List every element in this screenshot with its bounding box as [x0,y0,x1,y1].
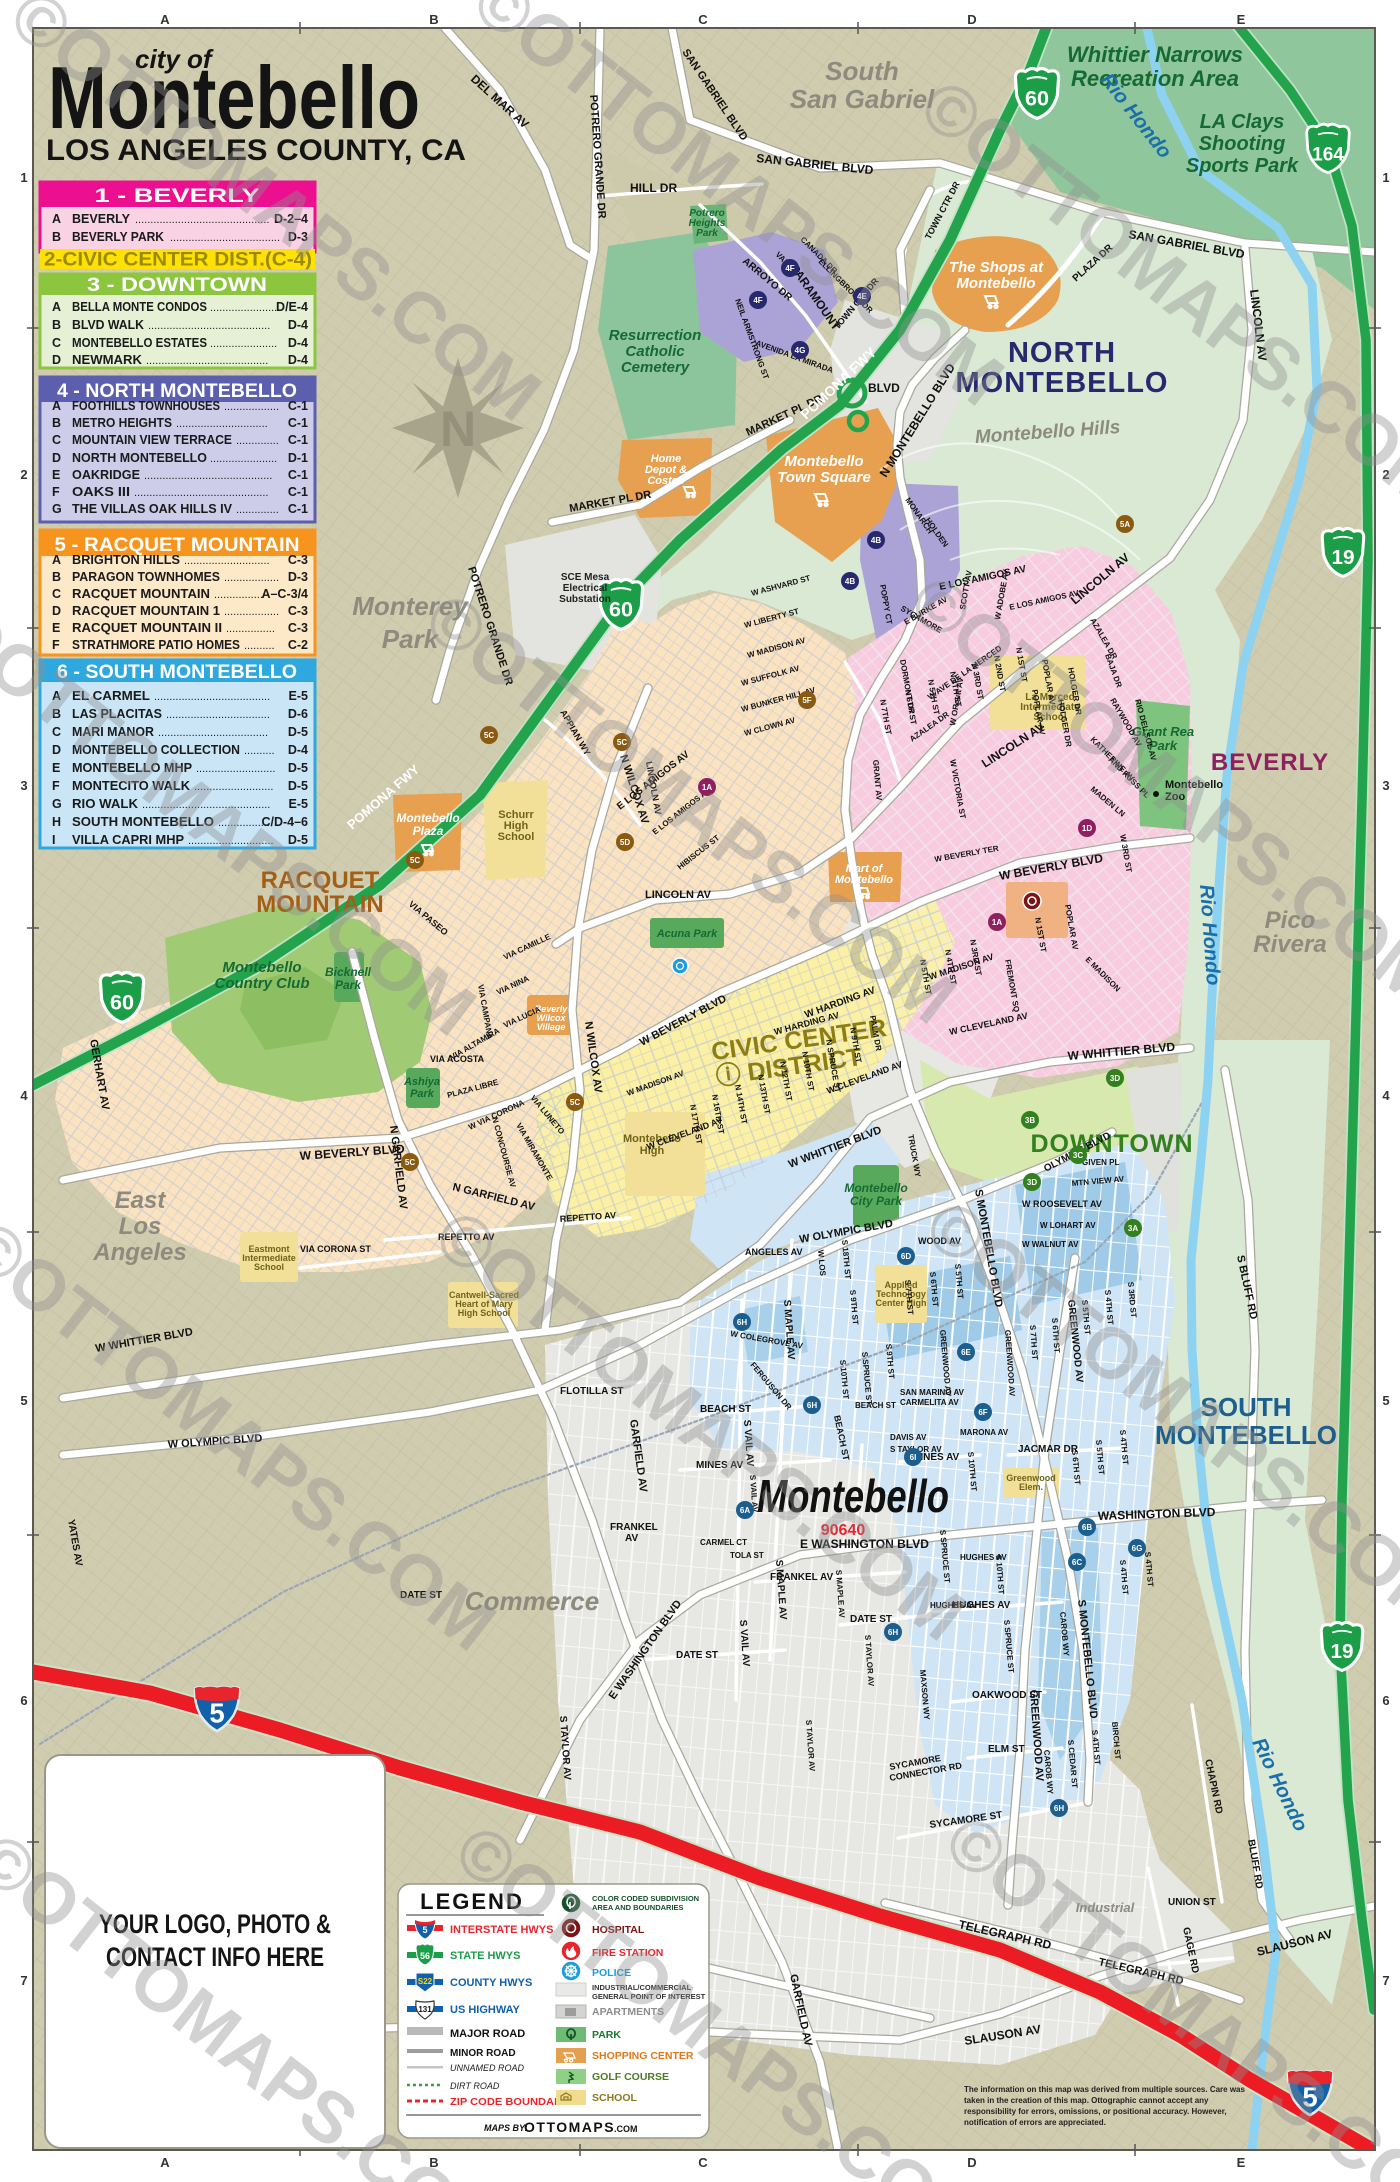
svg-text:6H: 6H [807,1401,817,1410]
svg-text:6H: 6H [1054,1804,1064,1813]
svg-text:The Shops at: The Shops at [949,259,1044,276]
svg-text:VIA CORONA ST: VIA CORONA ST [300,1244,371,1254]
svg-text:OTTOMAPS: OTTOMAPS [524,2119,615,2135]
svg-text:D: D [967,2155,976,2170]
svg-text:Cemetery: Cemetery [621,359,690,376]
svg-text:MAJOR ROAD: MAJOR ROAD [450,2028,525,2040]
svg-text:Electrical: Electrical [563,583,608,594]
svg-text:60: 60 [609,597,633,622]
svg-text:C-1: C-1 [288,399,308,413]
svg-text:131: 131 [418,2005,432,2014]
svg-text:BEACH ST: BEACH ST [855,1401,896,1410]
svg-text:C: C [52,336,61,350]
svg-text:East: East [115,1187,167,1214]
svg-text:DIRT ROAD: DIRT ROAD [450,2081,500,2091]
svg-text:CARMEL CT: CARMEL CT [700,1538,747,1547]
svg-text:Village: Village [537,1022,566,1032]
svg-text:UNNAMED ROAD: UNNAMED ROAD [450,2063,525,2073]
svg-text:..............................: ........................................ [148,320,270,332]
svg-text:Center High: Center High [875,1298,926,1308]
svg-text:..................: .................. [224,606,279,618]
svg-text:4: 4 [1382,1088,1390,1103]
svg-text:Los: Los [119,1213,162,1240]
svg-text:Ashiya: Ashiya [403,1076,440,1088]
svg-text:Park: Park [696,228,718,239]
svg-text:4B: 4B [871,536,881,545]
svg-text:5A: 5A [1120,520,1130,529]
svg-text:E: E [52,468,60,482]
svg-text:MOUNTAIN VIEW TERRACE: MOUNTAIN VIEW TERRACE [72,433,232,447]
svg-text:Park: Park [410,1088,435,1100]
svg-text:..........: .......... [244,640,275,652]
svg-text:SAN MARINO AV: SAN MARINO AV [900,1388,965,1397]
svg-text:D/E-4: D/E-4 [276,300,308,314]
svg-text:1: 1 [20,170,27,185]
svg-text:..............................: .............................. [176,418,268,430]
svg-text:OAKS III: OAKS III [72,485,130,499]
svg-text:C-3: C-3 [288,553,308,567]
svg-text:A: A [52,212,61,226]
svg-text:3: 3 [20,778,27,793]
svg-text:C-3: C-3 [288,621,308,635]
svg-text:5: 5 [422,1925,427,1935]
svg-text:5C: 5C [405,1158,415,1167]
svg-text:3D: 3D [1110,1074,1120,1083]
svg-text:..............: .............. [236,504,279,516]
svg-text:School: School [254,1262,284,1272]
svg-text:E-5: E-5 [289,797,309,811]
svg-text:BELLA MONTE CONDOS: BELLA MONTE CONDOS [72,300,207,314]
svg-text:4B: 4B [845,577,855,586]
svg-text:..............................: ........................................… [144,470,272,482]
svg-text:The information on this map wa: The information on this map was derived … [964,2085,1246,2094]
svg-text:7: 7 [1382,1973,1389,1988]
svg-text:San Gabriel: San Gabriel [790,84,935,114]
svg-text:......................: ...................... [210,338,277,350]
svg-text:6: 6 [1382,1693,1389,1708]
svg-text:taken in the creation of: taken in the creation of this map. Ottog… [964,2096,1209,2105]
svg-text:JACMAR DR: JACMAR DR [1018,1444,1079,1455]
svg-text:E: E [1237,12,1246,27]
svg-text:SCE Mesa: SCE Mesa [561,572,610,583]
svg-text:C: C [52,587,61,601]
svg-text:4: 4 [20,1088,28,1103]
svg-text:19: 19 [1330,1640,1353,1663]
svg-text:1: 1 [1382,170,1389,185]
svg-text:I: I [52,833,55,847]
svg-text:5: 5 [20,1393,27,1408]
svg-text:responsibility for errors,: responsibility for errors, omissions, or… [964,2107,1227,2116]
svg-text:..............................: ........................................ [146,355,268,367]
svg-text:DATE ST: DATE ST [676,1650,718,1661]
svg-text:D-3: D-3 [288,570,308,584]
svg-text:BLVD WALK: BLVD WALK [72,318,144,332]
svg-text:RACQUET MOUNTAIN: RACQUET MOUNTAIN [72,587,210,601]
svg-text:Plaza: Plaza [413,824,444,838]
svg-text:D: D [52,353,61,367]
svg-text:..............................: .................................... [158,727,268,739]
svg-text:AV: AV [625,1533,638,1544]
svg-text:................: ................ [226,623,275,635]
svg-text:60: 60 [1025,86,1049,111]
svg-text:STRATHMORE PATIO HOMES: STRATHMORE PATIO HOMES [72,638,240,652]
svg-text:US HIGHWAY: US HIGHWAY [450,2004,521,2016]
svg-text:5C: 5C [410,856,420,865]
svg-text:RACQUET MOUNTAIN 1: RACQUET MOUNTAIN 1 [72,604,220,618]
svg-text:A: A [52,399,61,413]
svg-text:C-1: C-1 [288,433,308,447]
svg-text:6B: 6B [1082,1523,1092,1532]
svg-text:A: A [52,300,61,314]
svg-text:D-4: D-4 [288,336,308,350]
svg-text:Elem.: Elem. [1019,1482,1043,1492]
svg-text:Costco: Costco [647,475,685,487]
svg-text:BRIGHTON HILLS: BRIGHTON HILLS [72,553,180,567]
svg-text:GIVEN PL: GIVEN PL [1082,1158,1119,1167]
svg-text:F: F [52,779,60,793]
svg-text:C: C [698,2155,708,2170]
svg-text:1D: 1D [1082,824,1092,833]
svg-text:C-3: C-3 [288,604,308,618]
svg-text:LA Clays: LA Clays [1200,111,1285,133]
svg-text:NEWMARK: NEWMARK [72,353,142,367]
svg-text:TOLA ST: TOLA ST [730,1551,764,1560]
svg-text:1A: 1A [992,918,1002,927]
svg-text:3A: 3A [1128,1224,1138,1233]
svg-text:South: South [825,56,899,86]
svg-text:Shooting: Shooting [1199,133,1286,155]
svg-text:3C: 3C [1073,1151,1083,1160]
svg-text:3: 3 [1382,778,1389,793]
svg-text:F: F [52,485,60,499]
svg-text:..................: .................. [224,401,279,413]
svg-text:C-2: C-2 [288,638,308,652]
svg-text:A: A [52,553,61,567]
svg-text:FOOTHILLS TOWNHOUSES: FOOTHILLS TOWNHOUSES [72,399,220,413]
svg-text:Montebello: Montebello [956,275,1035,292]
svg-text:Recreation Area: Recreation Area [1071,66,1239,91]
svg-text:City Park: City Park [850,1194,903,1208]
svg-text:NORTH: NORTH [1008,337,1116,369]
svg-text:H: H [52,815,61,829]
svg-text:OAKWOOD ST: OAKWOOD ST [972,1690,1042,1701]
svg-text:A–C-3/4: A–C-3/4 [261,587,308,601]
svg-text:BEVERLY: BEVERLY [72,212,131,226]
svg-text:FRANKEL: FRANKEL [610,1522,658,1533]
svg-text:School: School [498,831,535,843]
svg-text:5: 5 [209,1698,224,1729]
svg-text:......................: ...................... [210,302,277,314]
svg-text:C: C [698,12,708,27]
svg-text:E-5: E-5 [289,689,309,703]
svg-text:PARAGON TOWNHOMES: PARAGON TOWNHOMES [72,570,220,584]
svg-text:B: B [52,570,61,584]
svg-text:MARONA AV: MARONA AV [960,1428,1009,1437]
svg-text:D: D [52,604,61,618]
svg-text:Substation: Substation [559,594,611,605]
svg-text:STATE HWYS: STATE HWYS [450,1950,520,1962]
svg-text:BEVERLY: BEVERLY [1211,749,1329,776]
svg-text:Sports Park: Sports Park [1186,155,1299,177]
svg-text:RACQUET MOUNTAIN II: RACQUET MOUNTAIN II [72,621,222,635]
svg-text:..............................: ........................................… [134,487,268,499]
svg-text:3 - DOWNTOWN: 3 - DOWNTOWN [87,275,267,296]
svg-text:METRO HEIGHTS: METRO HEIGHTS [72,416,172,430]
svg-text:B: B [52,230,61,244]
svg-text:OAKRIDGE: OAKRIDGE [72,468,140,482]
svg-text:D: D [967,12,976,27]
svg-text:............................: ............................ [184,555,270,567]
svg-text:6E: 6E [961,1348,971,1357]
svg-text:4F: 4F [753,296,762,305]
svg-text:19: 19 [1331,546,1354,569]
svg-text:..............................: ...................................... [154,691,270,703]
svg-text:G: G [52,797,62,811]
svg-text:SCHOOL: SCHOOL [592,2092,638,2104]
svg-text:.COM: .COM [614,2124,638,2134]
svg-text:D-6: D-6 [288,707,308,721]
svg-text:D: D [52,451,61,465]
svg-text:C-1: C-1 [288,468,308,482]
svg-text:MONTEBELLO ESTATES: MONTEBELLO ESTATES [72,336,207,350]
svg-text:C-1: C-1 [288,485,308,499]
svg-text:..................: .................. [224,572,279,584]
svg-text:B: B [429,12,438,27]
svg-text:5D: 5D [620,838,630,847]
svg-text:ANGELES AV: ANGELES AV [745,1247,803,1257]
svg-text:A: A [160,2155,170,2170]
svg-text:N: N [440,401,476,457]
svg-text:D-5: D-5 [288,725,308,739]
svg-text:E: E [52,621,60,635]
svg-text:5: 5 [1382,1393,1389,1408]
svg-text:Resurrection: Resurrection [609,327,702,344]
svg-text:MAPS BY:: MAPS BY: [484,2123,528,2133]
svg-text:C: C [52,433,61,447]
svg-text:Catholic: Catholic [625,343,685,360]
svg-text:Montebello: Montebello [396,811,459,825]
svg-text:5C: 5C [570,1098,580,1107]
svg-text:D-4: D-4 [288,318,308,332]
svg-text:CARMELITA AV: CARMELITA AV [900,1398,959,1407]
svg-text:FRANKEL AV: FRANKEL AV [770,1572,833,1583]
svg-text:6G: 6G [1132,1544,1143,1553]
svg-text:Montebello: Montebello [222,959,301,976]
svg-text:6F: 6F [978,1408,987,1417]
svg-text:6I: 6I [910,1453,917,1462]
svg-text:PARK: PARK [592,2029,621,2041]
svg-text:B: B [52,416,61,430]
svg-text:Whittier Narrows: Whittier Narrows [1067,42,1243,67]
svg-text:W LOHART AV: W LOHART AV [1040,1221,1096,1230]
svg-text:6C: 6C [1072,1558,1082,1567]
svg-text:D-5: D-5 [288,761,308,775]
svg-text:Montebello: Montebello [784,453,863,470]
svg-text:GOLF COURSE: GOLF COURSE [592,2071,669,2083]
svg-text:Country Club: Country Club [215,975,310,992]
svg-text:2: 2 [20,467,27,482]
svg-text:UNION ST: UNION ST [1168,1897,1216,1908]
svg-text:Angeles: Angeles [92,1239,186,1266]
svg-text:......................: ...................... [210,453,277,465]
svg-text:BEVERLY PARK: BEVERLY PARK [72,230,164,244]
svg-text:60: 60 [110,990,134,1015]
svg-text:C-1: C-1 [288,416,308,430]
svg-text:................: ................ [214,589,263,601]
svg-text:164: 164 [1312,144,1344,165]
svg-text:NORTH MONTEBELLO: NORTH MONTEBELLO [72,451,207,465]
svg-text:6H: 6H [737,1318,747,1327]
svg-text:E: E [52,761,60,775]
svg-text:DAVIS AV: DAVIS AV [890,1433,927,1442]
svg-text:COUNTY HWYS: COUNTY HWYS [450,1977,532,1989]
svg-text:..........: .......... [244,745,275,757]
svg-text:THE VILLAS OAK HILLS IV: THE VILLAS OAK HILLS IV [72,502,233,516]
svg-text:W ROOSEVELT AV: W ROOSEVELT AV [1022,1199,1102,1209]
svg-text:S22: S22 [418,1977,433,1986]
svg-text:G: G [52,502,62,516]
svg-text:C-1: C-1 [288,502,308,516]
svg-text:Town Square: Town Square [777,469,871,486]
svg-text:A: A [160,12,170,27]
svg-text:3B: 3B [1025,1116,1035,1125]
svg-text:56: 56 [420,1951,430,1961]
svg-text:D-4: D-4 [288,743,308,757]
svg-text:B: B [52,318,61,332]
svg-text:7: 7 [20,1973,27,1988]
svg-text:4G: 4G [795,346,806,355]
svg-text:BLVD: BLVD [868,381,900,395]
svg-text:5C: 5C [484,731,494,740]
svg-text:Montebello: Montebello [844,1181,907,1195]
svg-text:E: E [1237,2155,1246,2170]
svg-text:..............: .............. [236,435,279,447]
svg-text:DOWNTOWN: DOWNTOWN [1030,1130,1193,1158]
svg-text:D-1: D-1 [288,451,308,465]
svg-text:ELM ST: ELM ST [988,1744,1025,1755]
svg-text:Acuna Park: Acuna Park [656,928,718,940]
svg-text:..............................: .................................. [166,709,270,721]
svg-text:MINOR ROAD: MINOR ROAD [450,2048,516,2059]
svg-text:D-4: D-4 [288,353,308,367]
svg-text:5F: 5F [802,696,811,705]
svg-text:6D: 6D [901,1252,911,1261]
svg-text:D-5: D-5 [288,779,308,793]
svg-text:6: 6 [20,1693,27,1708]
svg-text:notification of errors are app: notification of errors are appreciated. [964,2118,1106,2127]
svg-text:LINCOLN AV: LINCOLN AV [645,889,712,901]
svg-text:3D: 3D [1027,1178,1037,1187]
